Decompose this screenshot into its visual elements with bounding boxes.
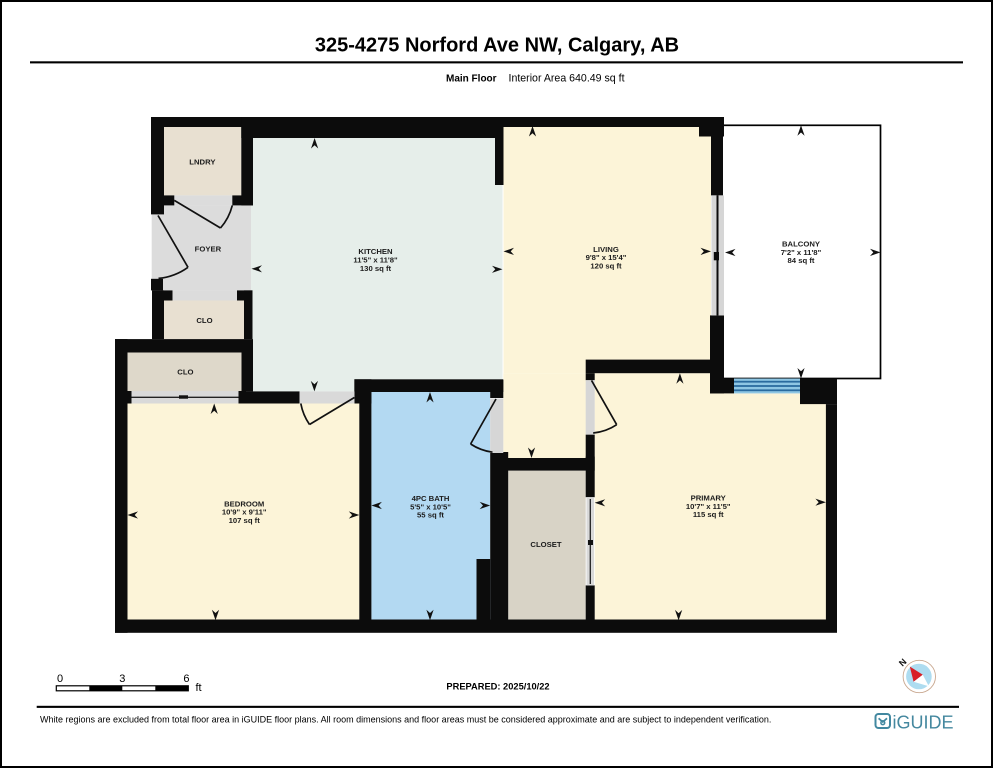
svg-text:White regions are excluded fro: White regions are excluded from total fl… <box>40 714 771 724</box>
svg-text:120 sq ft: 120 sq ft <box>590 261 622 270</box>
svg-text:55 sq ft: 55 sq ft <box>417 511 444 520</box>
svg-text:PREPARED: 2025/10/22: PREPARED: 2025/10/22 <box>446 682 549 692</box>
svg-text:115 sq ft: 115 sq ft <box>693 510 724 519</box>
svg-text:CLO: CLO <box>196 316 212 325</box>
svg-text:Interior Area 640.49 sq ft: Interior Area 640.49 sq ft <box>509 73 625 85</box>
svg-text:LNDRY: LNDRY <box>189 157 215 166</box>
svg-text:Main Floor: Main Floor <box>446 74 497 85</box>
svg-text:iGUIDE: iGUIDE <box>893 713 954 733</box>
svg-text:3: 3 <box>119 673 125 685</box>
svg-text:CLO: CLO <box>177 368 193 377</box>
svg-text:0: 0 <box>57 673 63 685</box>
svg-text:84 sq ft: 84 sq ft <box>788 256 815 265</box>
svg-text:325-4275 Norford Ave NW, Calga: 325-4275 Norford Ave NW, Calgary, AB <box>315 35 679 57</box>
svg-text:130 sq ft: 130 sq ft <box>360 264 392 273</box>
svg-text:FOYER: FOYER <box>195 244 222 253</box>
svg-text:CLOSET: CLOSET <box>530 540 561 549</box>
svg-text:6: 6 <box>183 673 189 685</box>
svg-text:ft: ft <box>196 682 202 694</box>
svg-text:107 sq ft: 107 sq ft <box>229 516 261 525</box>
